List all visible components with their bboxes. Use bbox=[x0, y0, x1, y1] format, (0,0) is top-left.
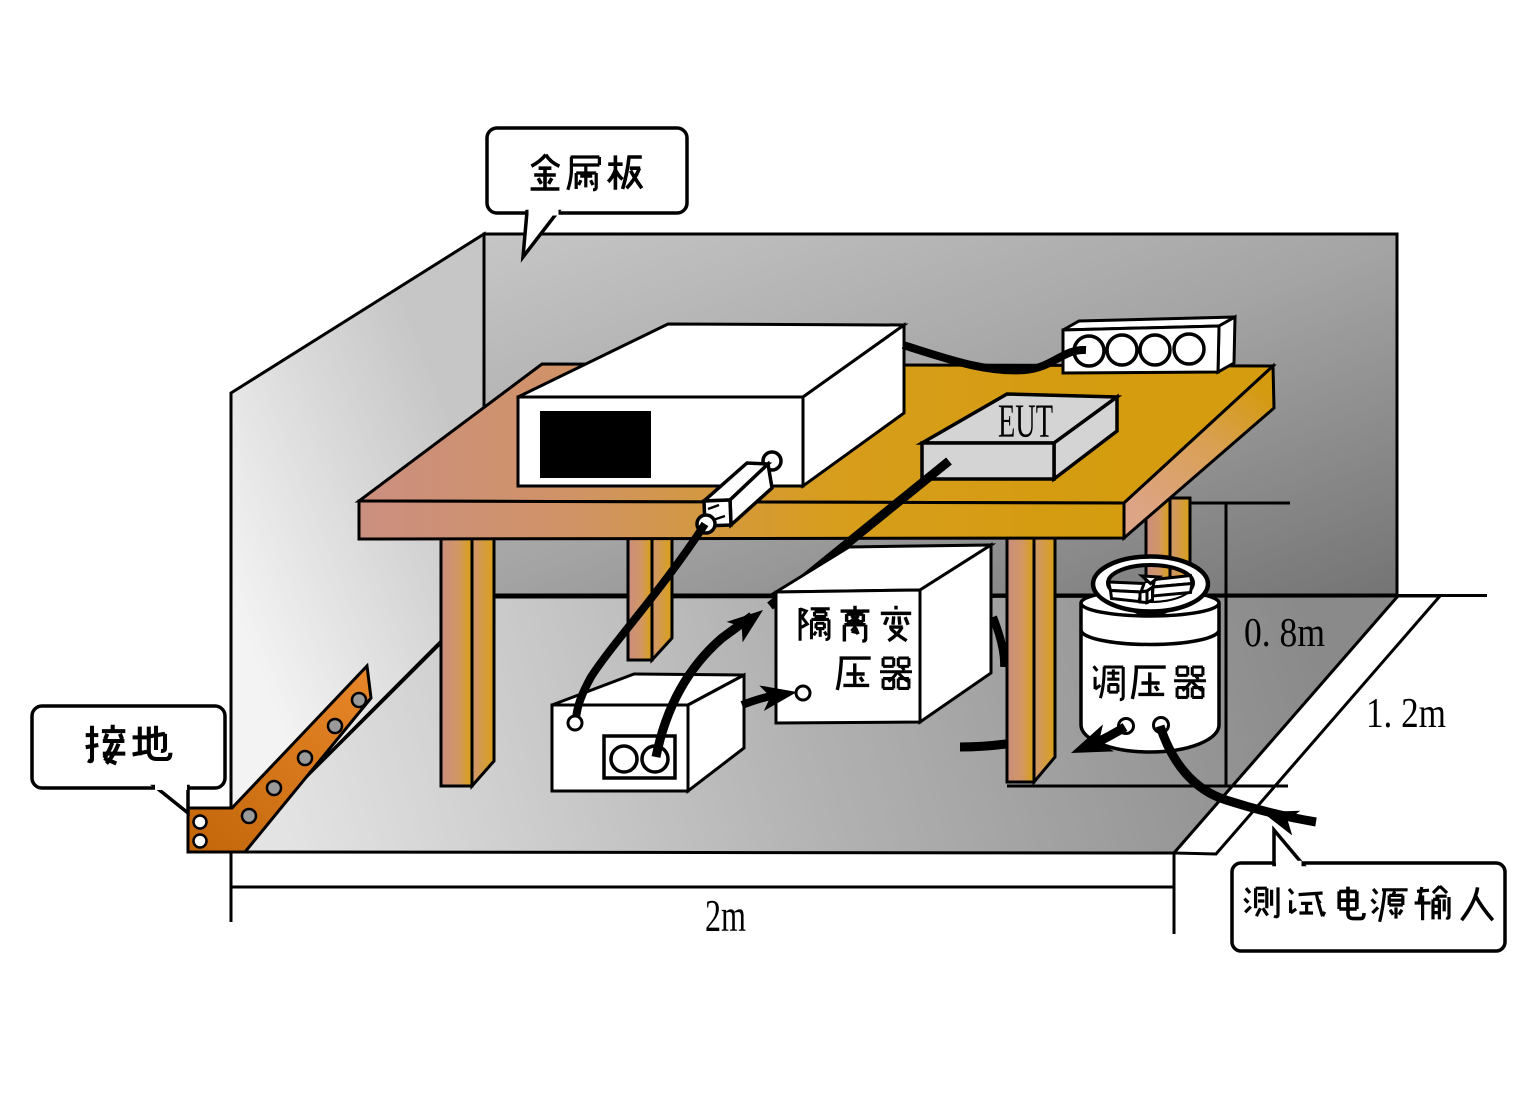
svg-text:0. 8m: 0. 8m bbox=[1244, 609, 1325, 655]
svg-text:2m: 2m bbox=[705, 890, 746, 941]
svg-text:1. 2m: 1. 2m bbox=[1366, 691, 1446, 737]
svg-text:EUT: EUT bbox=[998, 395, 1053, 448]
